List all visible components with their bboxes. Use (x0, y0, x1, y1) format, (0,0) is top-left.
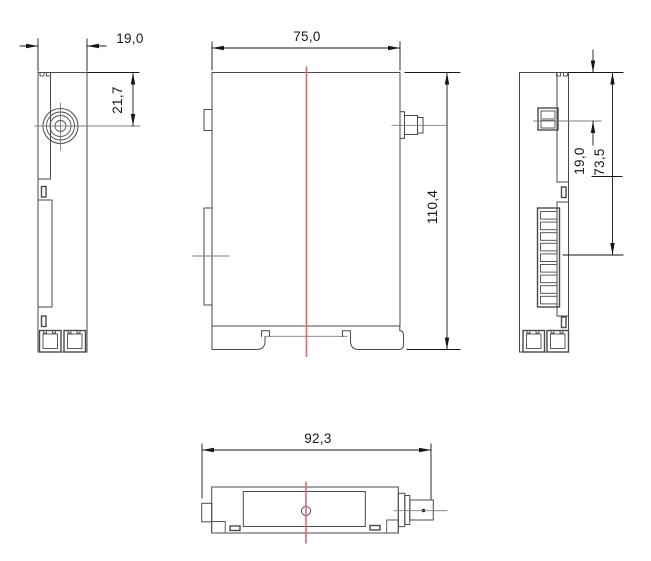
dimension-label: 75,0 (293, 29, 320, 44)
dimension-left-width: 19,0 (20, 31, 144, 71)
dimension-label: 92,3 (304, 431, 331, 446)
body-outline (520, 73, 569, 353)
ladder-slat (541, 212, 558, 220)
right-foot-step (387, 520, 399, 533)
front-view: 75,0 110,4 (193, 29, 460, 357)
terminal-notch (44, 331, 47, 334)
terminal-block-opening (43, 334, 58, 349)
dimension-front-height: 110,4 (405, 73, 460, 350)
right-side-view: 19,0 73,5 (520, 50, 624, 352)
vent-slot (230, 526, 240, 531)
terminal-block (64, 331, 86, 353)
terminal-block-opening (551, 334, 566, 349)
arrowhead (131, 73, 135, 85)
arrowhead (610, 73, 614, 85)
dimension-label: 19,0 (116, 31, 143, 46)
ladder-slat (541, 233, 558, 241)
connector-opening (541, 121, 555, 129)
bnc-connector-side (394, 493, 447, 526)
arrowhead (212, 46, 224, 50)
left-foot-step (212, 522, 226, 534)
dimension-label: 73,5 (592, 148, 607, 175)
arrowhead (202, 448, 214, 452)
left-foot (212, 326, 265, 350)
vent-slot (370, 526, 380, 531)
terminal-notch (536, 331, 539, 334)
ladder-slat (541, 254, 558, 262)
arrowhead (610, 243, 614, 255)
ladder-slat (541, 275, 558, 283)
square-connector (534, 108, 602, 130)
top-latch-notch (564, 73, 568, 77)
arrowhead (445, 338, 449, 350)
top-latch-notch (40, 73, 44, 77)
terminal-notch (53, 331, 56, 334)
front-face-edge (557, 73, 569, 183)
ladder-slat (541, 286, 558, 294)
ladder-slat (541, 296, 558, 304)
terminal-notch (527, 331, 530, 334)
left-side-tab (204, 110, 212, 131)
dimension-label: 19,0 (572, 147, 587, 174)
technical-drawing-page: 19,0 21,7 (0, 0, 651, 561)
bnc-ring (405, 496, 410, 525)
arrowhead (87, 44, 99, 48)
terminal-block (547, 331, 569, 353)
ladder-slat (541, 243, 558, 251)
vent-slot (42, 187, 47, 198)
terminal-notch (560, 331, 563, 334)
vent-slot (42, 316, 47, 327)
terminal-block (523, 331, 545, 353)
dimension-connector-offset: 21,7 (88, 73, 139, 127)
arrowhead (419, 448, 431, 452)
terminal-notch (68, 331, 71, 334)
top-latch-notch (47, 73, 51, 77)
terminal-notch (551, 331, 554, 334)
terminal-block (40, 331, 62, 353)
din-rail-slider (204, 208, 212, 305)
arrowhead (591, 61, 595, 73)
arrowhead (26, 44, 38, 48)
din-rail-foot-profile (212, 326, 404, 350)
terminal-ladder-block (538, 208, 560, 307)
vent-slot (562, 187, 567, 198)
bnc-flange (398, 493, 405, 526)
dimension-label: 110,4 (425, 190, 440, 224)
terminal-block-opening (527, 334, 542, 349)
left-rail-tab (262, 331, 270, 337)
dimension-front-width: 75,0 (212, 29, 400, 70)
left-side-view: 19,0 21,7 (20, 31, 144, 352)
face-panel (243, 492, 365, 527)
right-foot (351, 326, 404, 350)
bnc-connector-side (392, 112, 446, 139)
terminal-notch (77, 331, 80, 334)
body-outline (38, 73, 87, 353)
ladder-slat (541, 265, 558, 273)
dimension-bottom-depth: 92,3 (202, 431, 431, 499)
vent-slot (562, 317, 567, 328)
right-rail-tab (343, 331, 351, 337)
arrowhead (388, 46, 400, 50)
arrowhead (591, 121, 595, 133)
terminal-block-opening (68, 334, 83, 349)
bottom-view: 92,3 (202, 431, 447, 544)
bnc-barrel (410, 500, 434, 520)
left-side-tab (202, 503, 212, 522)
ladder-slat (541, 222, 558, 230)
side-panel (557, 202, 569, 316)
dimension-label: 21,7 (110, 86, 125, 113)
drawing-canvas: 19,0 21,7 (0, 0, 651, 561)
connector-opening (541, 111, 555, 119)
arrowhead (445, 73, 449, 85)
side-recess-panel (38, 200, 52, 307)
arrowhead (131, 114, 135, 126)
